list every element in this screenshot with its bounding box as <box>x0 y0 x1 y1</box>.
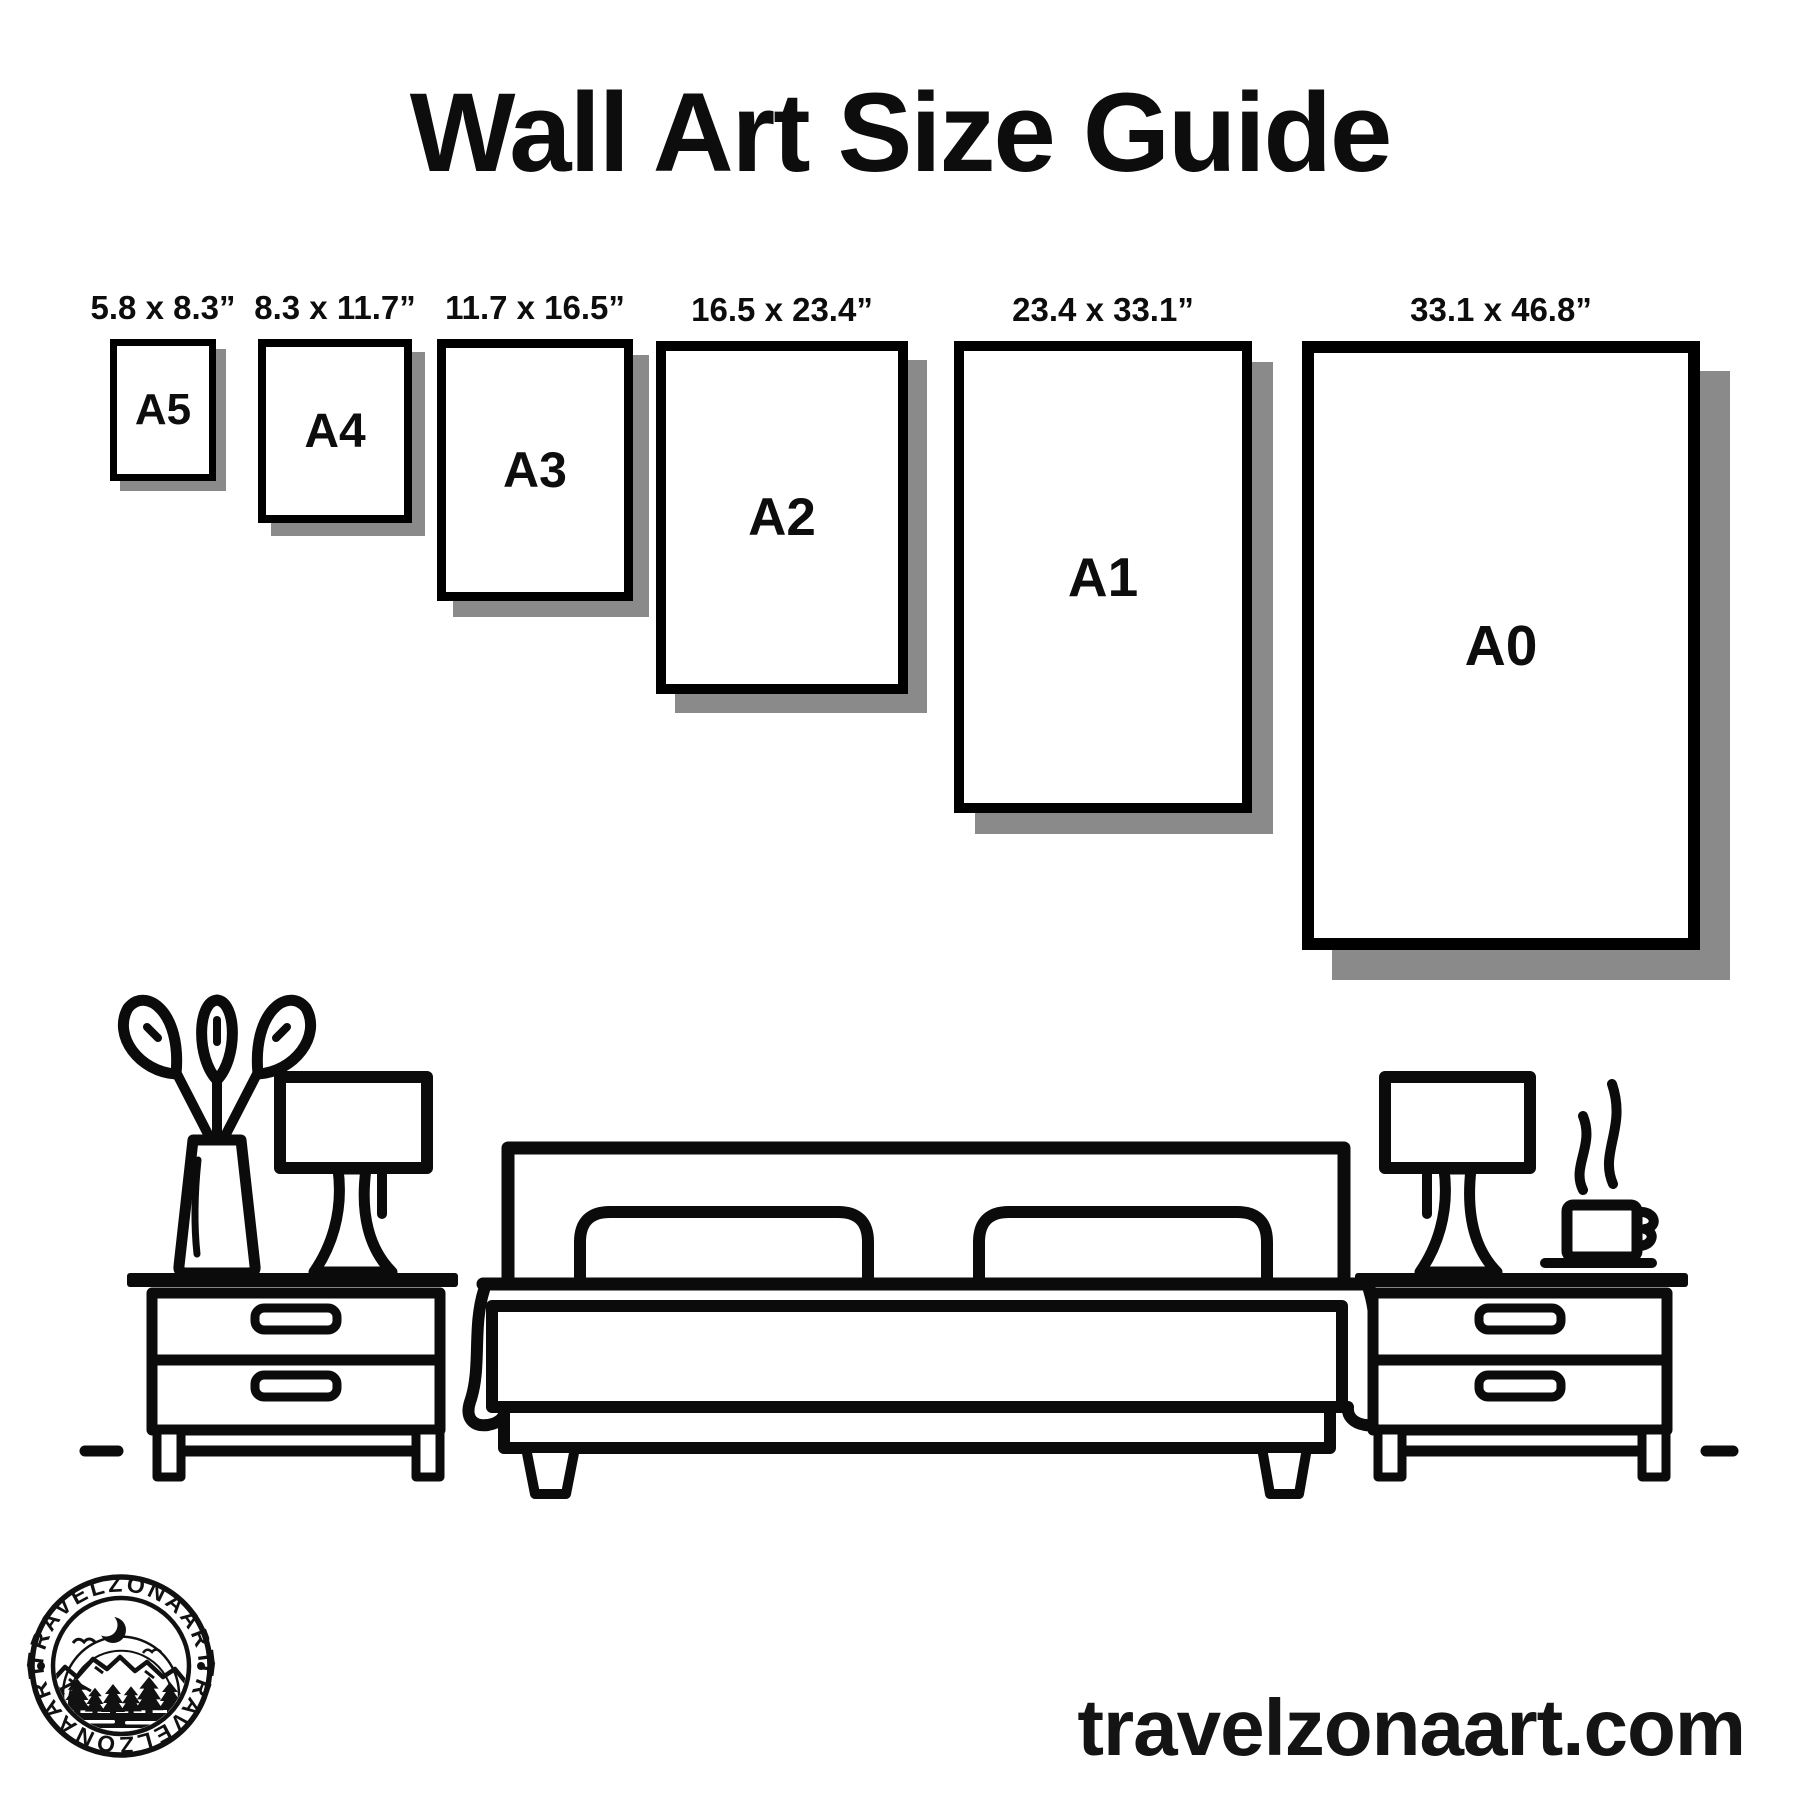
frame-paper: A2 <box>656 341 908 694</box>
lamp-shade <box>280 1077 427 1168</box>
size-name-label-a5: A5 <box>135 385 191 435</box>
bed-leg-right <box>1262 1448 1307 1494</box>
leaf-right <box>257 1000 310 1074</box>
lamp-shade <box>1385 1077 1530 1168</box>
brand-logo-badge: TRAVELZONAART TRAVELZONAART <box>25 1567 217 1765</box>
frame-paper: A4 <box>258 339 412 523</box>
dimension-label-a1: 23.4 x 33.1” <box>1012 291 1194 329</box>
table-lamp-left <box>280 1077 427 1272</box>
drawer-handle <box>1479 1375 1561 1397</box>
nightstand-leg <box>1642 1430 1666 1477</box>
nightstand-leg <box>1378 1430 1402 1477</box>
steam <box>1609 1084 1617 1184</box>
website-url: travelzonaart.com <box>1077 1682 1745 1774</box>
bed-base <box>504 1407 1330 1448</box>
leaf-left <box>123 1000 176 1074</box>
bird-icon <box>143 1650 161 1654</box>
page-title: Wall Art Size Guide <box>0 68 1800 197</box>
frame-paper: A3 <box>437 339 633 601</box>
dimension-label-a5: 5.8 x 8.3” <box>91 289 236 327</box>
bed-leg-left <box>526 1448 575 1494</box>
dimension-label-a4: 8.3 x 11.7” <box>254 289 415 327</box>
size-name-label-a3: A3 <box>503 441 567 499</box>
table-lamp-right <box>1385 1077 1530 1272</box>
bed-illustration <box>469 1148 1385 1494</box>
cup-body <box>1567 1205 1637 1257</box>
vase <box>179 1140 255 1273</box>
size-frame-a0: 33.1 x 46.8” A0 <box>1302 341 1700 950</box>
moon-icon <box>95 1614 127 1644</box>
bedroom-scene-illustration <box>0 960 1800 1520</box>
size-name-label-a2: A2 <box>748 487 816 548</box>
frame-paper: A0 <box>1302 341 1700 950</box>
size-name-label-a4: A4 <box>304 404 365 459</box>
size-frame-a5: 5.8 x 8.3” A5 <box>110 339 216 481</box>
dimension-label-a2: 16.5 x 23.4” <box>691 291 873 329</box>
dimension-label-a3: 11.7 x 16.5” <box>445 289 625 327</box>
size-frame-a1: 23.4 x 33.1” A1 <box>954 341 1252 813</box>
bird-icon <box>73 1639 95 1643</box>
nightstand-leg <box>416 1430 440 1477</box>
frame-paper: A1 <box>954 341 1252 813</box>
drawer-handle <box>1479 1308 1561 1330</box>
frame-paper: A5 <box>110 339 216 481</box>
dimension-label-a0: 33.1 x 46.8” <box>1410 291 1592 329</box>
nightstand-leg <box>157 1430 181 1477</box>
nightstand-top <box>1355 1273 1688 1287</box>
size-frame-a3: 11.7 x 16.5” A3 <box>437 339 633 601</box>
drawer-handle <box>255 1308 337 1330</box>
size-frame-a2: 16.5 x 23.4” A2 <box>656 341 908 694</box>
blanket-band <box>492 1306 1342 1407</box>
size-name-label-a1: A1 <box>1068 545 1138 609</box>
size-name-label-a0: A0 <box>1465 613 1538 679</box>
coffee-cup <box>1545 1084 1654 1263</box>
wall-art-size-guide-poster: Wall Art Size Guide 5.8 x 8.3” A5 8.3 x … <box>0 0 1800 1800</box>
size-frame-a4: 8.3 x 11.7” A4 <box>258 339 412 523</box>
steam <box>1580 1116 1587 1190</box>
drawer-handle <box>255 1375 337 1397</box>
